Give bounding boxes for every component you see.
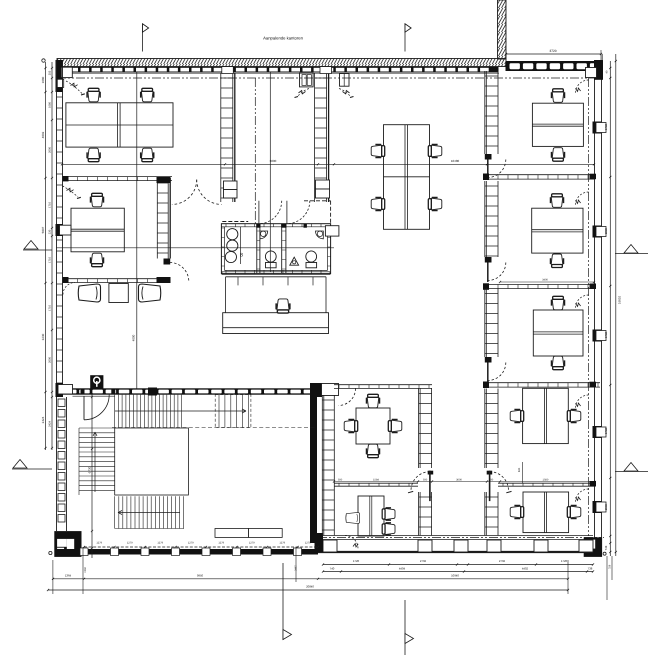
svg-text:1733: 1733 (604, 427, 608, 434)
svg-text:500: 500 (423, 478, 428, 481)
svg-text:3000: 3000 (270, 159, 277, 163)
svg-text:1279: 1279 (188, 542, 194, 545)
svg-text:500: 500 (489, 478, 494, 481)
svg-text:8: 8 (240, 253, 243, 259)
svg-text:1584: 1584 (373, 478, 379, 481)
svg-text:2424: 2424 (41, 416, 45, 423)
svg-text:1720: 1720 (561, 559, 568, 563)
svg-text:10940: 10940 (451, 573, 459, 577)
svg-text:1710: 1710 (49, 305, 52, 311)
svg-text:1279: 1279 (127, 542, 133, 545)
svg-text:1080: 1080 (41, 76, 45, 83)
svg-text:1733: 1733 (604, 331, 608, 338)
svg-text:4000: 4000 (132, 334, 136, 341)
svg-text:500: 500 (338, 478, 343, 481)
svg-text:1710: 1710 (49, 202, 52, 208)
svg-text:630: 630 (518, 467, 521, 472)
svg-text:4802: 4802 (41, 131, 45, 138)
svg-text:2880: 2880 (604, 227, 608, 234)
svg-text:3400: 3400 (542, 279, 548, 282)
svg-text:5807: 5807 (41, 226, 45, 233)
svg-text:738: 738 (604, 545, 608, 550)
svg-text:3720: 3720 (549, 49, 556, 53)
svg-text:3000: 3000 (456, 478, 462, 481)
svg-text:2424: 2424 (49, 421, 52, 427)
svg-text:3230: 3230 (41, 333, 45, 340)
svg-text:4404: 4404 (399, 566, 406, 570)
svg-text:1080: 1080 (49, 102, 52, 108)
svg-text:1710: 1710 (49, 257, 52, 263)
svg-text:Aanpalende kantoren: Aanpalende kantoren (263, 36, 303, 41)
svg-text:16810: 16810 (618, 295, 622, 304)
svg-text:2732: 2732 (499, 559, 506, 563)
svg-text:740: 740 (330, 566, 335, 570)
svg-text:1279: 1279 (96, 542, 102, 545)
svg-text:7432: 7432 (84, 567, 87, 573)
svg-text:6730: 6730 (87, 466, 91, 473)
svg-text:10480: 10480 (451, 159, 460, 163)
svg-text:355: 355 (49, 70, 52, 75)
svg-text:9950: 9950 (197, 573, 204, 577)
svg-text:4402: 4402 (522, 566, 529, 570)
svg-text:2000: 2000 (49, 147, 52, 153)
svg-text:3467: 3467 (294, 565, 297, 571)
svg-text:1279: 1279 (249, 542, 255, 545)
svg-text:759: 759 (609, 564, 612, 569)
svg-text:1279: 1279 (279, 542, 285, 545)
svg-text:2000: 2000 (49, 357, 52, 363)
svg-text:1733: 1733 (604, 123, 608, 130)
svg-text:230: 230 (49, 229, 52, 234)
svg-text:2000: 2000 (604, 503, 608, 510)
svg-text:20840: 20840 (306, 585, 314, 589)
svg-text:1720: 1720 (353, 559, 360, 563)
svg-text:1580: 1580 (543, 478, 549, 481)
svg-text:1279: 1279 (157, 542, 163, 545)
svg-text:2732: 2732 (420, 559, 427, 563)
svg-text:1279: 1279 (218, 542, 224, 545)
svg-text:1364: 1364 (65, 573, 72, 577)
svg-text:738: 738 (588, 566, 593, 570)
